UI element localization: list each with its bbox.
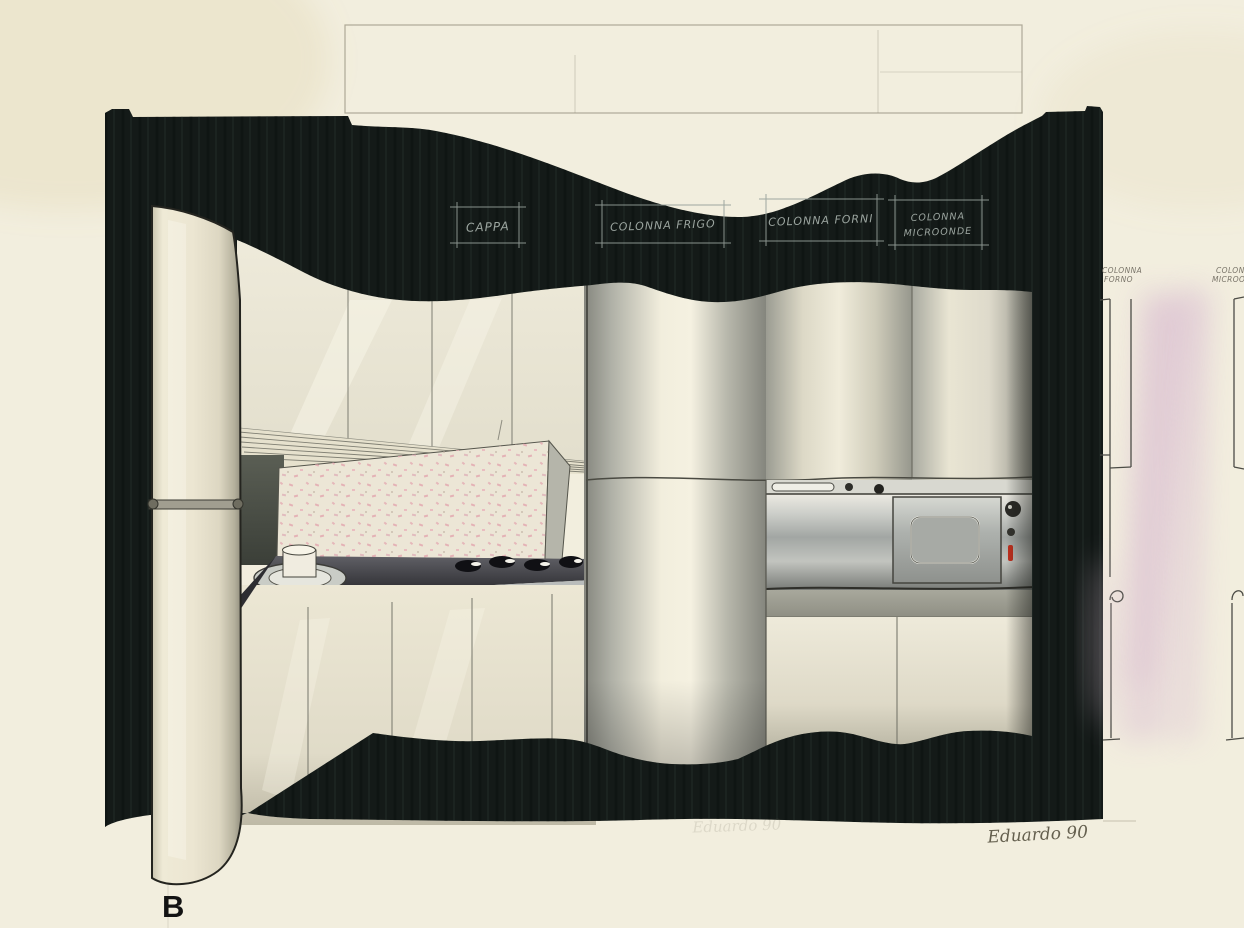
section-microonde-label-line1: COLONNA: [1216, 266, 1244, 275]
door-highlight: [168, 220, 186, 860]
knob: [874, 484, 884, 494]
handle-slot: [772, 483, 834, 491]
section-forno-label-line1: COLONNA: [1102, 266, 1142, 275]
appliance-band: [766, 480, 1036, 617]
sketch-canvas: CAPPA COLONNA FRIGO COLONNA FORNI COLONN…: [0, 0, 1244, 928]
ghost-signature: Eduardo 90: [691, 815, 782, 836]
kitchen-perspective: [234, 228, 1036, 825]
section-forno-label-line2: FORNO: [1104, 275, 1133, 284]
right-edge-shadow: [1006, 228, 1036, 743]
fridge-door: [148, 206, 243, 884]
artist-signature: Eduardo 90: [986, 822, 1089, 847]
door-handle: [148, 499, 243, 509]
oven-window: [911, 517, 979, 563]
figure-label-b: B: [162, 889, 184, 924]
knob: [845, 483, 853, 491]
under-band-strip: [766, 590, 1036, 617]
center-column: [584, 228, 768, 773]
section-microonde-label-line2: MICROONDE: [1212, 275, 1244, 284]
callout-colonna-microonde-line1: COLONNA: [911, 211, 966, 224]
sketch-page: CAPPA COLONNA FRIGO COLONNA FORNI COLONN…: [0, 0, 1244, 928]
callout-cappa-label: CAPPA: [466, 219, 510, 235]
